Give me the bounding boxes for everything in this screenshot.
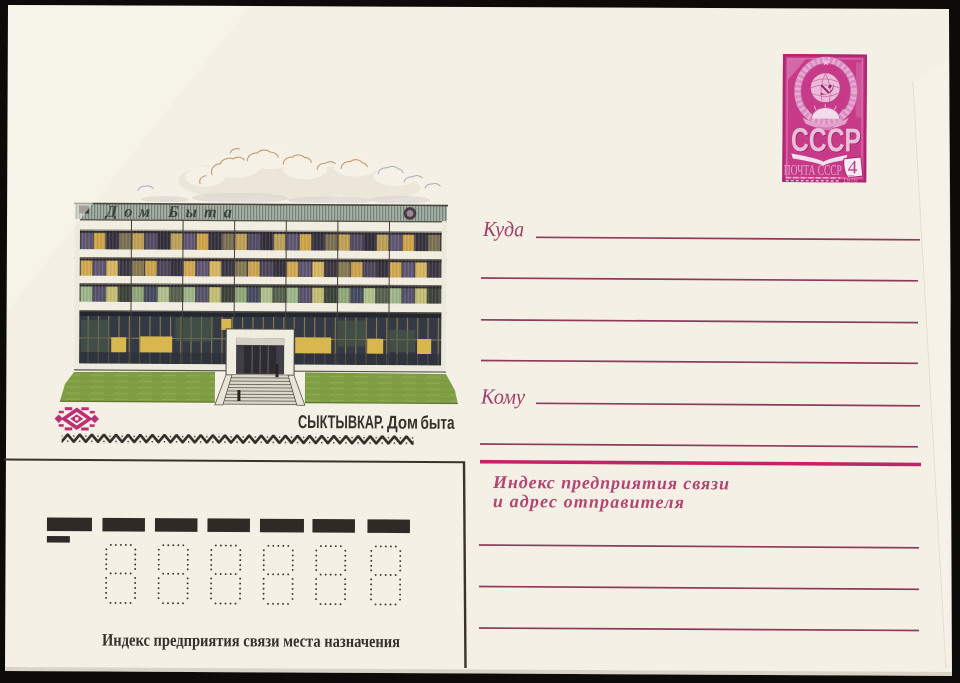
- svg-text:быта: быта: [420, 412, 455, 433]
- svg-text:СССР: СССР: [791, 121, 861, 158]
- svg-text:и адрес отправителя: и адрес отправителя: [493, 491, 684, 512]
- svg-text:ПОЧТА СССР: ПОЧТА СССР: [784, 163, 842, 179]
- svg-text:Индекс предприятия связи места: Индекс предприятия связи места назначени…: [102, 630, 400, 652]
- svg-text:Кому: Кому: [480, 384, 526, 408]
- svg-text:1976: 1976: [843, 177, 858, 184]
- svg-text:СЫКТЫВКАР.: СЫКТЫВКАР.: [298, 411, 384, 432]
- svg-text:Индекс предприятия связи: Индекс предприятия связи: [492, 472, 729, 493]
- svg-text:Дом: Дом: [387, 412, 418, 433]
- svg-text:Куда: Куда: [482, 217, 524, 241]
